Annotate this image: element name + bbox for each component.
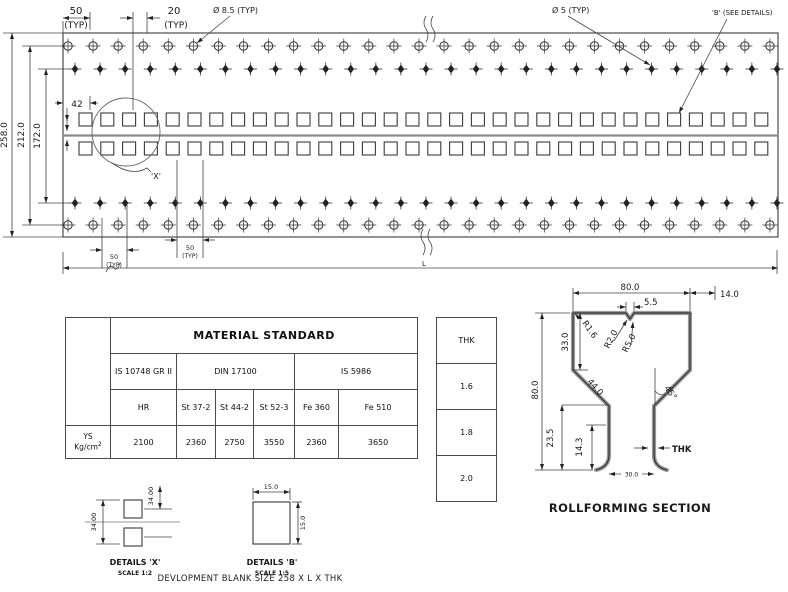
ys-label: YS bbox=[66, 432, 110, 441]
grade-st37: St 37-2 bbox=[177, 390, 216, 426]
details-x-dim-left: 34.00 bbox=[90, 513, 98, 532]
dim-50-b2-typ: (TYP) bbox=[182, 253, 198, 260]
hole-dia-large-label: Ø 8.5 (TYP) bbox=[213, 5, 258, 15]
radius-corner-label: R1.6 bbox=[580, 319, 599, 341]
details-x-drawing: 34.00 34.00 DETAILS 'X' SCALE 1:2 bbox=[60, 478, 190, 580]
details-x-dim-right: 34.00 bbox=[147, 487, 155, 506]
perforated-panel-drawing: 50 (TYP) 20 (TYP) Ø 8.5 (TYP) Ø 5 (TYP) … bbox=[0, 0, 788, 285]
dim-50-top-value: 50 bbox=[70, 6, 83, 17]
ys-row-header: YS Kg/cm2 bbox=[66, 426, 111, 459]
dimension-lines bbox=[3, 12, 778, 274]
dim-50-b1-value: 50 bbox=[110, 253, 118, 261]
section-title: ROLLFORMING SECTION bbox=[549, 501, 711, 515]
ys-value-st44: 2750 bbox=[216, 426, 254, 459]
thk-pointer-label: THK bbox=[672, 445, 692, 455]
grade-fe360: Fe 360 bbox=[295, 390, 339, 426]
radius-notch-label: R2.0 bbox=[603, 329, 621, 351]
dim-50-b2-value: 50 bbox=[186, 244, 194, 252]
ys-unit-sup: 2 bbox=[98, 441, 102, 448]
length-label: L bbox=[422, 260, 426, 268]
development-blank-note: DEVLOPMENT BLANK SIZE 258 X L X THK bbox=[118, 574, 382, 584]
dim-height-label: 80.0 bbox=[531, 381, 541, 400]
thk-value-1: 1.6 bbox=[437, 364, 497, 410]
dim-42-label: 42 bbox=[71, 100, 82, 110]
section-annotations: 80.0 14.0 5.5 R1.6 R2.0 R5.0 33.0 80.0 4… bbox=[531, 283, 739, 515]
grade-hr: HR bbox=[111, 390, 177, 426]
dim-20-typ: (TYP) bbox=[164, 21, 187, 31]
hole-dia-small-label: Ø 5 (TYP) bbox=[552, 5, 589, 15]
grade-fe510: Fe 510 bbox=[339, 390, 418, 426]
material-table-title: MATERIAL STANDARD bbox=[111, 318, 418, 354]
details-x-title: DETAILS 'X' bbox=[110, 558, 161, 567]
details-b-drawing: 15.0 15.0 DETAILS 'B' SCALE 1:5 bbox=[238, 478, 328, 580]
dim-258-label: 258.0 bbox=[0, 122, 10, 148]
ys-value-st37: 2360 bbox=[177, 426, 216, 459]
ys-unit: Kg/cm2 bbox=[66, 441, 110, 452]
thickness-table: THK 1.6 1.8 2.0 bbox=[436, 317, 497, 502]
dim-lower-label: 23.5 bbox=[546, 429, 556, 448]
details-b-geometry bbox=[253, 488, 302, 544]
detail-x-ref-label: 'X' bbox=[151, 172, 161, 181]
grade-st44: St 44-2 bbox=[216, 390, 254, 426]
standard-din17100: DIN 17100 bbox=[177, 354, 295, 390]
dim-bottom-width-label: 30.0 bbox=[625, 472, 639, 479]
panel-outline bbox=[63, 33, 778, 237]
panel-annotations: 50 (TYP) 20 (TYP) Ø 8.5 (TYP) Ø 5 (TYP) … bbox=[0, 5, 773, 269]
thk-value-3: 2.0 bbox=[437, 456, 497, 502]
standard-is5986: IS 5986 bbox=[295, 354, 418, 390]
standard-is10748: IS 10748 GR II bbox=[111, 354, 177, 390]
dim-50-b1-typ: (TYP) bbox=[106, 262, 122, 269]
details-b-title: DETAILS 'B' bbox=[247, 558, 298, 567]
dim-top-width-label: 80.0 bbox=[621, 283, 640, 293]
detail-b-ref-label: 'B' (SEE DETAILS) bbox=[712, 9, 773, 17]
table-corner-cell bbox=[66, 318, 111, 426]
dim-foot-label: 14.3 bbox=[575, 438, 585, 457]
dim-212-label: 212.0 bbox=[17, 122, 27, 148]
details-b-dim-height: 15.0 bbox=[299, 516, 307, 530]
dim-notch-label: 5.5 bbox=[644, 298, 658, 308]
dim-50-top-typ: (TYP) bbox=[64, 21, 87, 31]
grade-st52: St 52-3 bbox=[254, 390, 295, 426]
radius-notch2-label: R5.0 bbox=[621, 333, 639, 355]
ys-value-fe360: 2360 bbox=[295, 426, 339, 459]
dim-offset-label: 14.0 bbox=[720, 290, 739, 300]
thk-header: THK bbox=[437, 318, 497, 364]
material-standard-table: MATERIAL STANDARD IS 10748 GR II DIN 171… bbox=[65, 317, 418, 459]
engineering-drawing-sheet: 50 (TYP) 20 (TYP) Ø 8.5 (TYP) Ø 5 (TYP) … bbox=[0, 0, 788, 592]
details-b-dim-width: 15.0 bbox=[264, 483, 278, 491]
ys-value-fe510: 3650 bbox=[339, 426, 418, 459]
details-x-geometry bbox=[85, 486, 180, 546]
rollforming-section-drawing: 80.0 14.0 5.5 R1.6 R2.0 R5.0 33.0 80.0 4… bbox=[530, 278, 765, 523]
dim-20-value: 20 bbox=[168, 6, 181, 17]
dim-172-label: 172.0 bbox=[33, 123, 43, 149]
thk-value-2: 1.8 bbox=[437, 410, 497, 456]
ys-value-hr: 2100 bbox=[111, 426, 177, 459]
dim-upper-wall-label: 33.0 bbox=[561, 333, 571, 352]
ys-value-st52: 3550 bbox=[254, 426, 295, 459]
